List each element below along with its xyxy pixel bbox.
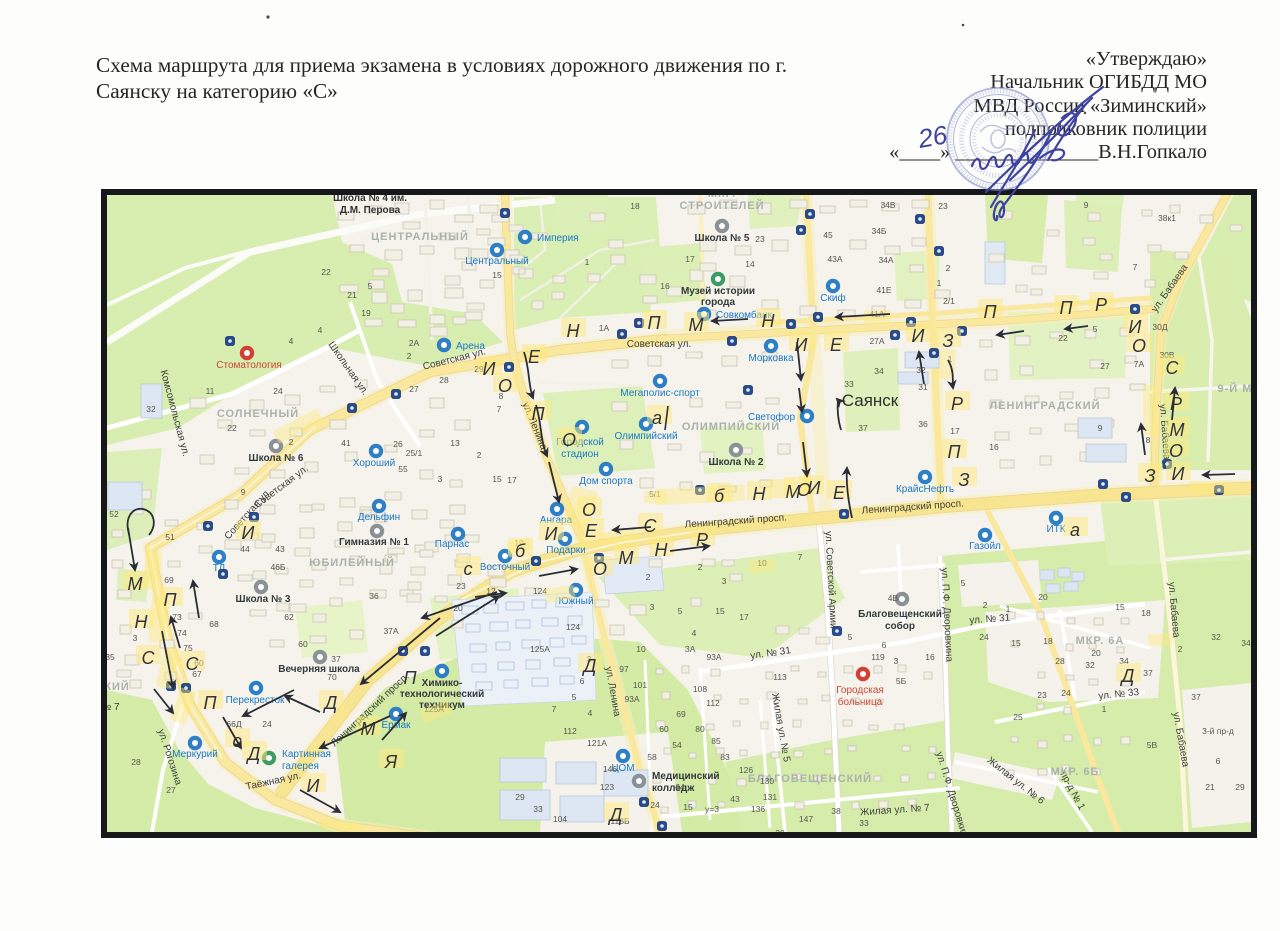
svg-text:34: 34: [874, 366, 884, 376]
svg-text:И: И: [545, 524, 558, 544]
svg-text:24: 24: [979, 632, 989, 642]
svg-text:54: 54: [672, 740, 682, 750]
svg-text:37: 37: [331, 654, 341, 664]
svg-text:а: а: [652, 408, 662, 428]
svg-text:58: 58: [647, 752, 657, 762]
svg-text:П: П: [1059, 298, 1073, 318]
svg-text:Я: Я: [384, 752, 398, 772]
svg-text:С: С: [142, 648, 156, 668]
svg-text:32: 32: [1211, 632, 1221, 642]
svg-text:О: О: [1169, 441, 1183, 461]
svg-text:15: 15: [683, 802, 693, 812]
svg-text:Н: Н: [655, 540, 669, 560]
svg-text:Дельфин: Дельфин: [358, 511, 400, 523]
svg-text:15: 15: [1011, 638, 1021, 648]
svg-text:45: 45: [823, 230, 833, 240]
svg-text:Д.М. Перова: Д.М. Перова: [340, 205, 401, 216]
svg-text:36: 36: [369, 591, 379, 601]
svg-text:43: 43: [275, 544, 285, 554]
svg-text:104: 104: [553, 814, 567, 824]
svg-text:112: 112: [563, 726, 577, 736]
svg-text:123: 123: [600, 782, 614, 792]
svg-text:34А: 34А: [878, 255, 893, 265]
svg-text:7: 7: [497, 404, 502, 414]
svg-text:14: 14: [745, 259, 755, 269]
svg-text:Д: Д: [608, 805, 623, 825]
svg-text:21: 21: [347, 290, 357, 300]
svg-text:28: 28: [439, 375, 449, 385]
svg-text:О: О: [582, 500, 596, 520]
svg-text:И: И: [483, 359, 496, 379]
svg-text:23: 23: [938, 201, 948, 211]
svg-text:П: П: [403, 668, 417, 688]
svg-text:3: 3: [894, 656, 899, 666]
svg-text:124: 124: [566, 622, 580, 632]
svg-text:22: 22: [321, 267, 331, 277]
svg-text:ЮБИЛЕЙНЫЙ: ЮБИЛЕЙНЫЙ: [309, 556, 395, 569]
svg-text:70: 70: [327, 672, 337, 682]
svg-text:18: 18: [1043, 636, 1053, 646]
svg-text:О: О: [1132, 336, 1146, 356]
svg-text:24: 24: [1061, 688, 1071, 698]
svg-text:25/1: 25/1: [406, 448, 423, 458]
svg-text:36: 36: [918, 419, 928, 429]
svg-text:Д: Д: [323, 693, 338, 713]
svg-text:4: 4: [318, 325, 323, 335]
svg-text:4: 4: [692, 628, 697, 638]
svg-text:П: П: [203, 693, 217, 713]
svg-text:Советская ул.: Советская ул.: [627, 339, 691, 350]
svg-text:М: М: [689, 315, 704, 335]
svg-text:64: 64: [675, 782, 685, 792]
svg-text:Парнас: Парнас: [435, 539, 469, 550]
svg-text:Школа № 6: Школа № 6: [249, 453, 304, 464]
svg-text:26: 26: [915, 119, 950, 154]
svg-text:9: 9: [1098, 423, 1103, 433]
svg-text:52: 52: [109, 509, 119, 519]
svg-text:2/1: 2/1: [943, 296, 955, 306]
svg-text:О: О: [562, 430, 576, 450]
svg-text:Восточный: Восточный: [480, 562, 531, 573]
svg-text:собор: собор: [885, 620, 915, 632]
svg-text:29: 29: [515, 792, 525, 802]
svg-text:5: 5: [572, 692, 577, 702]
svg-text:с: с: [464, 559, 473, 579]
svg-text:4: 4: [289, 336, 294, 346]
svg-text:38к1: 38к1: [1158, 213, 1176, 223]
svg-text:Д: Д: [582, 656, 597, 676]
svg-text:Арена: Арена: [456, 341, 485, 352]
svg-text:68: 68: [209, 619, 219, 629]
svg-text:2А: 2А: [409, 338, 420, 348]
svg-text:Музей истории: Музей истории: [681, 286, 755, 297]
svg-text:119: 119: [871, 652, 885, 662]
svg-text:22: 22: [1058, 333, 1068, 343]
svg-text:9-Й МКР: 9-Й МКР: [1218, 382, 1269, 395]
svg-text:Перекресток: Перекресток: [226, 695, 285, 706]
svg-text:Саянск: Саянск: [842, 391, 899, 410]
svg-text:И: И: [307, 776, 320, 796]
svg-text:Мегаполис-спорт: Мегаполис-спорт: [620, 388, 700, 399]
svg-text:20: 20: [1091, 648, 1101, 658]
svg-text:126: 126: [739, 765, 753, 775]
svg-text:23: 23: [456, 581, 466, 591]
svg-text:51: 51: [165, 532, 175, 542]
svg-text:Дом спорта: Дом спорта: [579, 476, 633, 487]
svg-text:Вечерняя школа: Вечерняя школа: [278, 664, 360, 675]
svg-text:146: 146: [603, 764, 617, 774]
svg-text:125А: 125А: [530, 644, 550, 654]
svg-text:Городская: Городская: [836, 685, 884, 696]
svg-text:4: 4: [588, 708, 593, 718]
svg-text:Е: Е: [585, 521, 598, 541]
svg-text:136: 136: [751, 804, 765, 814]
svg-text:5: 5: [678, 606, 683, 616]
svg-text:СТРОИТЕЛЕЙ: СТРОИТЕЛЕЙ: [679, 199, 764, 212]
svg-text:И: И: [242, 523, 255, 543]
svg-text:38: 38: [831, 806, 841, 816]
svg-text:147: 147: [799, 814, 813, 824]
svg-text:Гимназия № 1: Гимназия № 1: [339, 537, 409, 548]
svg-text:69: 69: [676, 709, 686, 719]
svg-text:П: П: [163, 590, 177, 610]
svg-text:55: 55: [398, 464, 408, 474]
svg-text:М: М: [619, 548, 634, 568]
svg-text:Школа № 5: Школа № 5: [695, 233, 750, 244]
svg-text:Школа № 2: Школа № 2: [709, 457, 764, 468]
svg-text:Медицинский: Медицинский: [652, 771, 720, 782]
svg-text:стадион: стадион: [561, 449, 599, 460]
svg-text:Химико-: Химико-: [422, 678, 463, 689]
svg-text:Морковка: Морковка: [748, 353, 794, 364]
svg-text:37: 37: [858, 423, 868, 433]
svg-text:17: 17: [685, 254, 695, 264]
svg-text:3: 3: [438, 474, 443, 484]
svg-text:Е: Е: [833, 483, 846, 503]
svg-text:93А: 93А: [624, 694, 639, 704]
svg-text:И: И: [808, 478, 821, 498]
svg-text:Р: Р: [1170, 394, 1182, 414]
svg-text:11: 11: [206, 386, 215, 396]
svg-text:7: 7: [1133, 262, 1138, 272]
svg-text:37: 37: [1143, 668, 1153, 678]
svg-text:Школа № 3: Школа № 3: [236, 594, 291, 605]
svg-text:20: 20: [1038, 592, 1048, 602]
svg-text:1: 1: [585, 257, 590, 267]
svg-text:8: 8: [1146, 435, 1151, 445]
svg-text:СОЛНЕЧНЫЙ: СОЛНЕЧНЫЙ: [217, 407, 299, 420]
svg-text:1: 1: [937, 278, 942, 288]
svg-text:60: 60: [659, 724, 669, 734]
svg-text:С: С: [644, 516, 658, 536]
svg-text:И: И: [912, 326, 925, 346]
svg-text:121А: 121А: [587, 738, 607, 748]
svg-text:3-й пр-д: 3-й пр-д: [1202, 726, 1234, 736]
svg-text:5: 5: [1093, 324, 1098, 334]
svg-text:Р: Р: [1095, 295, 1107, 315]
svg-text:24: 24: [273, 386, 283, 396]
svg-text:Газойл: Газойл: [969, 541, 1001, 552]
svg-text:112: 112: [706, 698, 720, 708]
svg-text:2: 2: [477, 450, 482, 460]
svg-text:23: 23: [1037, 690, 1047, 700]
svg-text:3: 3: [722, 576, 727, 586]
svg-text:33: 33: [859, 818, 869, 828]
svg-text:города: города: [701, 297, 736, 308]
svg-text:О: О: [498, 376, 512, 396]
svg-text:16: 16: [925, 652, 935, 662]
svg-text:93А: 93А: [706, 652, 721, 662]
svg-text:7: 7: [798, 552, 803, 562]
svg-text:41: 41: [341, 438, 351, 448]
svg-text:1: 1: [1102, 704, 1107, 714]
svg-text:З: З: [958, 470, 969, 490]
svg-text:2: 2: [407, 351, 412, 361]
svg-text:колледж: колледж: [652, 783, 695, 794]
svg-text:больница: больница: [838, 696, 883, 708]
svg-text:17: 17: [950, 426, 960, 436]
svg-text:44: 44: [240, 544, 250, 554]
svg-text:Хороший: Хороший: [353, 458, 395, 469]
svg-text:130: 130: [760, 776, 774, 786]
svg-text:6: 6: [580, 676, 585, 686]
svg-text:27: 27: [409, 384, 419, 394]
svg-text:2: 2: [698, 562, 703, 572]
svg-text:37А: 37А: [383, 626, 398, 636]
svg-text:2: 2: [946, 263, 951, 273]
svg-text:Е: Е: [830, 335, 843, 355]
svg-text:25: 25: [1013, 712, 1023, 722]
svg-text:113: 113: [773, 672, 787, 682]
svg-text:5: 5: [848, 632, 853, 642]
svg-text:5: 5: [368, 281, 373, 291]
svg-text:41Е: 41Е: [876, 285, 891, 295]
svg-text:МКР. 6А: МКР. 6А: [1076, 635, 1125, 647]
svg-text:17: 17: [739, 612, 749, 622]
svg-text:КИЙ: КИЙ: [104, 680, 130, 693]
svg-text:43: 43: [730, 794, 740, 804]
svg-text:КрайсНефть: КрайсНефть: [896, 483, 954, 495]
svg-text:Империя: Империя: [537, 233, 579, 244]
svg-text:37: 37: [1191, 692, 1201, 702]
svg-text:Н: Н: [135, 612, 149, 632]
svg-text:З: З: [942, 331, 953, 351]
svg-text:9: 9: [1084, 200, 1089, 210]
svg-text:23: 23: [755, 234, 765, 244]
svg-text:З: З: [1144, 466, 1155, 486]
svg-text:33: 33: [844, 379, 854, 389]
svg-text:26: 26: [393, 439, 403, 449]
svg-text:27: 27: [166, 785, 176, 795]
svg-text:43А: 43А: [827, 254, 842, 264]
svg-text:62: 62: [284, 612, 294, 622]
svg-text:19: 19: [361, 308, 371, 318]
svg-text:Е: Е: [528, 347, 541, 367]
svg-text:7: 7: [552, 704, 557, 714]
svg-text:Светофор: Светофор: [748, 411, 795, 423]
svg-text:17: 17: [507, 475, 517, 485]
svg-text:П: П: [983, 302, 997, 322]
svg-text:29: 29: [1235, 782, 1245, 792]
svg-text:7А: 7А: [1134, 359, 1145, 369]
svg-text:2: 2: [1178, 644, 1183, 654]
svg-text:33: 33: [533, 804, 543, 814]
svg-text:Н: Н: [762, 311, 776, 331]
svg-text:30Д: 30Д: [1152, 322, 1167, 332]
svg-text:6: 6: [1216, 756, 1221, 766]
svg-text:Р: Р: [951, 394, 963, 414]
svg-text:15: 15: [492, 474, 502, 484]
svg-text:а: а: [1070, 520, 1080, 540]
svg-text:5Б: 5Б: [896, 676, 907, 686]
svg-text:4В: 4В: [888, 593, 899, 603]
svg-text:101: 101: [633, 680, 647, 690]
svg-text:5В: 5В: [1147, 740, 1158, 750]
svg-text:1А: 1А: [599, 323, 610, 333]
svg-text:74: 74: [177, 628, 187, 638]
svg-text:34В: 34В: [880, 200, 895, 210]
svg-text:73: 73: [172, 612, 182, 622]
svg-text:С: С: [186, 654, 200, 674]
svg-text:16: 16: [989, 442, 999, 452]
svg-text:85: 85: [711, 736, 721, 746]
svg-text:15: 15: [492, 270, 502, 280]
svg-text:Олимпийский: Олимпийский: [614, 431, 677, 442]
svg-text:Картинная: Картинная: [282, 749, 331, 760]
svg-text:27А: 27А: [869, 336, 884, 346]
svg-text:б: б: [714, 486, 725, 506]
svg-text:16: 16: [660, 281, 670, 291]
svg-text:83: 83: [720, 752, 730, 762]
svg-text:108: 108: [693, 684, 707, 694]
svg-text:27: 27: [1100, 361, 1110, 371]
svg-text:Н: Н: [753, 484, 767, 504]
svg-text:П: П: [947, 442, 961, 462]
svg-text:у=3: у=3: [705, 804, 719, 814]
svg-text:60: 60: [298, 639, 308, 649]
svg-text:80: 80: [695, 724, 705, 734]
svg-text:18: 18: [1141, 608, 1151, 618]
svg-text:15: 15: [1115, 602, 1125, 612]
svg-text:Д: Д: [246, 744, 261, 764]
svg-text:И: И: [1172, 464, 1185, 484]
svg-text:Ермак: Ермак: [381, 720, 411, 731]
svg-text:Д: Д: [1120, 666, 1135, 686]
svg-text:10: 10: [636, 644, 646, 654]
svg-text:97: 97: [619, 664, 629, 674]
svg-text:24: 24: [650, 800, 660, 810]
svg-text:24: 24: [262, 719, 272, 729]
svg-text:ЛЕНИНГРАДСКИЙ: ЛЕНИНГРАДСКИЙ: [989, 399, 1100, 412]
svg-text:131: 131: [763, 792, 777, 802]
svg-text:21: 21: [1205, 782, 1215, 792]
svg-text:Стоматология: Стоматология: [216, 360, 281, 371]
svg-text:ИТК: ИТК: [1046, 524, 1065, 535]
svg-text:Меркурий: Меркурий: [172, 749, 218, 760]
svg-text:9: 9: [241, 487, 246, 497]
svg-text:5: 5: [961, 578, 966, 588]
svg-text:32: 32: [1085, 660, 1095, 670]
svg-text:ЦЕНТРАЛЬНЫЙ: ЦЕНТРАЛЬНЫЙ: [371, 230, 469, 243]
svg-text:46Б: 46Б: [270, 562, 285, 572]
svg-text:М: М: [1170, 420, 1185, 440]
svg-text:галерея: галерея: [282, 761, 319, 772]
svg-text:Благовещенский: Благовещенский: [858, 609, 942, 620]
svg-text:б: б: [515, 541, 526, 561]
svg-text:34Б: 34Б: [871, 226, 886, 236]
svg-text:32: 32: [146, 404, 156, 414]
svg-text:28: 28: [131, 757, 141, 767]
svg-text:2: 2: [983, 600, 988, 610]
svg-text:3: 3: [133, 633, 138, 643]
svg-text:ЗА: ЗА: [685, 644, 696, 654]
svg-text:С: С: [1166, 358, 1180, 378]
svg-text:18: 18: [630, 201, 640, 211]
svg-text:28: 28: [1055, 656, 1065, 666]
svg-text:3: 3: [650, 602, 655, 612]
svg-text:П: П: [647, 313, 661, 333]
svg-text:Н: Н: [567, 321, 581, 341]
svg-text:М: М: [128, 574, 143, 594]
svg-text:13: 13: [450, 438, 460, 448]
svg-text:2: 2: [646, 572, 651, 582]
svg-text:6: 6: [882, 640, 887, 650]
svg-text:И: И: [1129, 317, 1142, 337]
svg-text:технологический: технологический: [400, 689, 485, 700]
svg-text:22: 22: [227, 423, 237, 433]
svg-text:МКР. 6Б: МКР. 6Б: [1051, 766, 1100, 778]
svg-text:34: 34: [1241, 638, 1251, 648]
svg-text:69: 69: [164, 575, 174, 585]
svg-text:1: 1: [1006, 604, 1011, 614]
svg-text:О: О: [593, 559, 607, 579]
svg-text:15: 15: [715, 606, 725, 616]
svg-text:Центральный: Центральный: [465, 256, 529, 267]
svg-text:Скиф: Скиф: [820, 292, 845, 304]
